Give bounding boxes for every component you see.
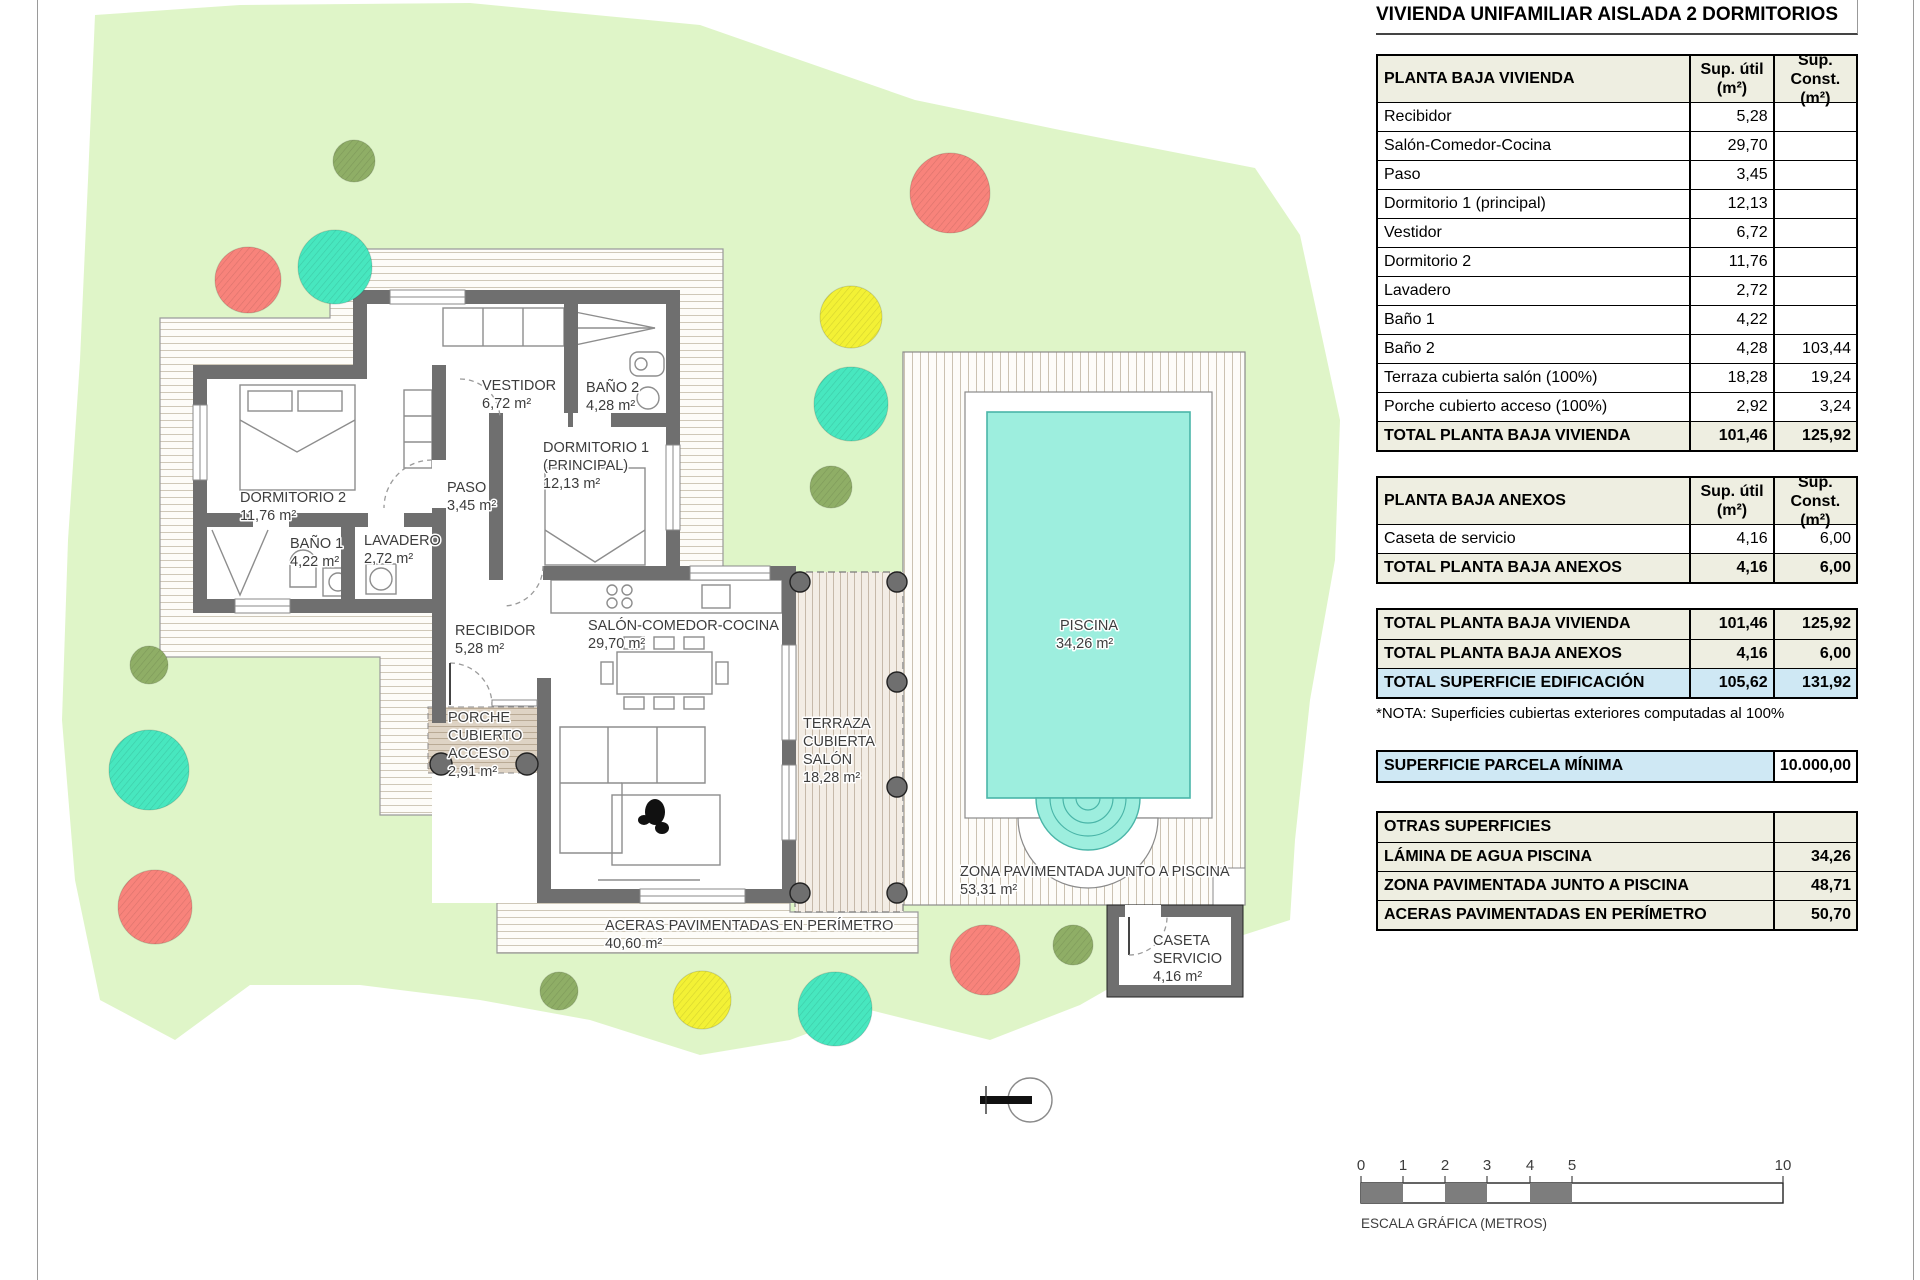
table-planta-baja-vivienda: PLANTA BAJA VIVIENDA Sup. útil (m²) Sup.… xyxy=(1376,54,1858,452)
pool-water xyxy=(987,412,1190,798)
label-salon: SALÓN-COMEDOR-COCINA xyxy=(588,617,779,634)
table-row: Baño 14,22 xyxy=(1378,305,1856,334)
table-row: TOTAL PLANTA BAJA VIVIENDA101,46125,92 xyxy=(1378,610,1856,639)
svg-text:4: 4 xyxy=(1526,1157,1534,1174)
col-header-sup-const: Sup. Const. (m²) xyxy=(1775,56,1856,102)
svg-text:34,26 m²: 34,26 m² xyxy=(1056,636,1113,652)
nota-text: *NOTA: Superficies cubiertas exteriores … xyxy=(1376,705,1858,722)
table-otras-superficies: OTRAS SUPERFICIES LÁMINA DE AGUA PISCINA… xyxy=(1376,811,1858,931)
svg-text:CUBIERTA: CUBIERTA xyxy=(803,734,875,750)
svg-text:4,16 m²: 4,16 m² xyxy=(1153,969,1202,985)
table-row: Recibidor5,28 xyxy=(1378,102,1856,131)
table-row: Salón-Comedor-Cocina29,70 xyxy=(1378,131,1856,160)
col-header-rooms: PLANTA BAJA VIVIENDA xyxy=(1378,56,1691,102)
svg-text:18,28 m²: 18,28 m² xyxy=(803,770,860,786)
label-lavadero: LAVADERO xyxy=(364,533,441,549)
svg-text:2: 2 xyxy=(1441,1157,1449,1174)
table-row: ACERAS PAVIMENTADAS EN PERÍMETRO50,70 xyxy=(1378,900,1856,929)
table-row: Dormitorio 211,76 xyxy=(1378,247,1856,276)
summary-panel: VIVIENDA UNIFAMILIAR AISLADA 2 DORMITORI… xyxy=(1376,0,1858,931)
svg-text:40,60 m²: 40,60 m² xyxy=(605,936,662,952)
svg-text:SERVICIO: SERVICIO xyxy=(1153,951,1222,967)
scale-bar-label: ESCALA GRÁFICA (METROS) xyxy=(1361,1216,1547,1231)
col-header-sup-util: Sup. útil (m²) xyxy=(1691,56,1774,102)
label-dormitorio2: DORMITORIO 2 xyxy=(240,490,346,506)
svg-text:5,28 m²: 5,28 m² xyxy=(455,641,504,657)
table-row: Terraza cubierta salón (100%)18,2819,24 xyxy=(1378,363,1856,392)
svg-text:4,28 m²: 4,28 m² xyxy=(586,398,635,414)
table-totales: TOTAL PLANTA BAJA VIVIENDA101,46125,92 T… xyxy=(1376,608,1858,699)
table-row: Lavadero2,72 xyxy=(1378,276,1856,305)
label-bano1: BAÑO 1 xyxy=(290,535,343,552)
svg-text:SALÓN: SALÓN xyxy=(803,751,852,768)
svg-text:10: 10 xyxy=(1775,1157,1792,1174)
label-terraza: TERRAZA xyxy=(803,716,871,732)
table-row: Porche cubierto acceso (100%)2,923,24 xyxy=(1378,392,1856,421)
svg-text:29,70 m²: 29,70 m² xyxy=(588,636,645,652)
svg-text:ACCESO: ACCESO xyxy=(448,746,509,762)
svg-text:11,76 m²: 11,76 m² xyxy=(240,508,296,524)
table-row: ZONA PAVIMENTADA JUNTO A PISCINA48,71 xyxy=(1378,871,1856,900)
otras-header-row: OTRAS SUPERFICIES xyxy=(1378,813,1856,842)
table-parcela-minima: SUPERFICIE PARCELA MÍNIMA10.000,00 xyxy=(1376,750,1858,783)
label-dormitorio1: DORMITORIO 1 xyxy=(543,440,649,456)
table-row: LÁMINA DE AGUA PISCINA34,26 xyxy=(1378,842,1856,871)
compass-icon xyxy=(980,1078,1052,1122)
svg-text:6,72 m²: 6,72 m² xyxy=(482,396,531,412)
svg-text:CUBIERTO: CUBIERTO xyxy=(448,728,522,744)
table-row: Dormitorio 1 (principal)12,13 xyxy=(1378,189,1856,218)
plan-sheet: DORMITORIO 2 11,76 m² PASO 3,45 m² VESTI… xyxy=(0,0,1920,1280)
label-bano2: BAÑO 2 xyxy=(586,379,639,396)
label-vestidor: VESTIDOR xyxy=(482,378,556,394)
svg-text:4,22 m²: 4,22 m² xyxy=(290,554,339,570)
page-title: VIVIENDA UNIFAMILIAR AISLADA 2 DORMITORI… xyxy=(1376,0,1858,35)
scale-bar: 0 1 2 3 4 5 10 ESCALA GRÁFICA (METROS) xyxy=(1357,1157,1792,1231)
table-row: Vestidor6,72 xyxy=(1378,218,1856,247)
total-superficie-edificacion-row: TOTAL SUPERFICIE EDIFICACIÓN105,62131,92 xyxy=(1378,668,1856,697)
table-row: TOTAL PLANTA BAJA ANEXOS4,166,00 xyxy=(1378,639,1856,668)
svg-text:3: 3 xyxy=(1483,1157,1491,1174)
svg-text:2,91 m²: 2,91 m² xyxy=(448,764,497,780)
total-row-vivienda: TOTAL PLANTA BAJA VIVIENDA101,46125,92 xyxy=(1378,421,1856,450)
svg-text:53,31 m²: 53,31 m² xyxy=(960,882,1017,898)
svg-text:5: 5 xyxy=(1568,1157,1576,1174)
svg-text:1: 1 xyxy=(1399,1157,1407,1174)
svg-text:12,13 m²: 12,13 m² xyxy=(543,476,600,492)
label-paso: PASO xyxy=(447,480,486,496)
table-row: Caseta de servicio4,166,00 xyxy=(1378,524,1856,553)
label-aceras: ACERAS PAVIMENTADAS EN PERÍMETRO xyxy=(605,917,893,934)
table-row: Baño 24,28103,44 xyxy=(1378,334,1856,363)
label-caseta: CASETA xyxy=(1153,933,1210,949)
total-row-anexos: TOTAL PLANTA BAJA ANEXOS4,166,00 xyxy=(1378,553,1856,582)
label-piscina: PISCINA xyxy=(1060,618,1118,634)
label-recibidor: RECIBIDOR xyxy=(455,623,536,639)
table-planta-baja-anexos: PLANTA BAJA ANEXOS Sup. útil (m²) Sup. C… xyxy=(1376,476,1858,584)
label-zona-pavimentada: ZONA PAVIMENTADA JUNTO A PISCINA xyxy=(960,864,1230,880)
svg-text:2,72 m²: 2,72 m² xyxy=(364,551,413,567)
svg-text:0: 0 xyxy=(1357,1157,1365,1174)
svg-text:3,45 m²: 3,45 m² xyxy=(447,498,496,514)
table-row: Paso3,45 xyxy=(1378,160,1856,189)
svg-text:(PRINCIPAL): (PRINCIPAL) xyxy=(543,458,628,474)
label-porche: PORCHE xyxy=(448,710,510,726)
